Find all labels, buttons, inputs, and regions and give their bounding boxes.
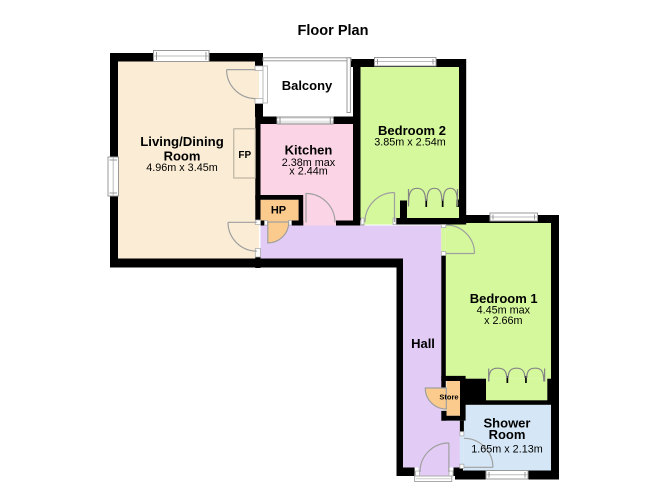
svg-text:Store: Store [439, 393, 458, 402]
svg-text:x 2.66m: x 2.66m [484, 315, 522, 327]
svg-text:x 2.44m: x 2.44m [289, 166, 327, 178]
svg-text:1.65m x 2.13m: 1.65m x 2.13m [471, 444, 542, 456]
svg-text:HP: HP [271, 205, 286, 217]
svg-text:Balcony: Balcony [282, 78, 333, 93]
svg-text:Living/Dining: Living/Dining [140, 134, 224, 149]
svg-text:4.96m x 3.45m: 4.96m x 3.45m [146, 162, 217, 174]
svg-text:Kitchen: Kitchen [285, 143, 333, 158]
svg-text:Floor Plan: Floor Plan [298, 23, 369, 39]
svg-text:FP: FP [238, 150, 251, 161]
svg-text:Room: Room [489, 427, 526, 442]
svg-text:3.85m x 2.54m: 3.85m x 2.54m [374, 137, 445, 149]
svg-text:Hall: Hall [411, 336, 435, 351]
